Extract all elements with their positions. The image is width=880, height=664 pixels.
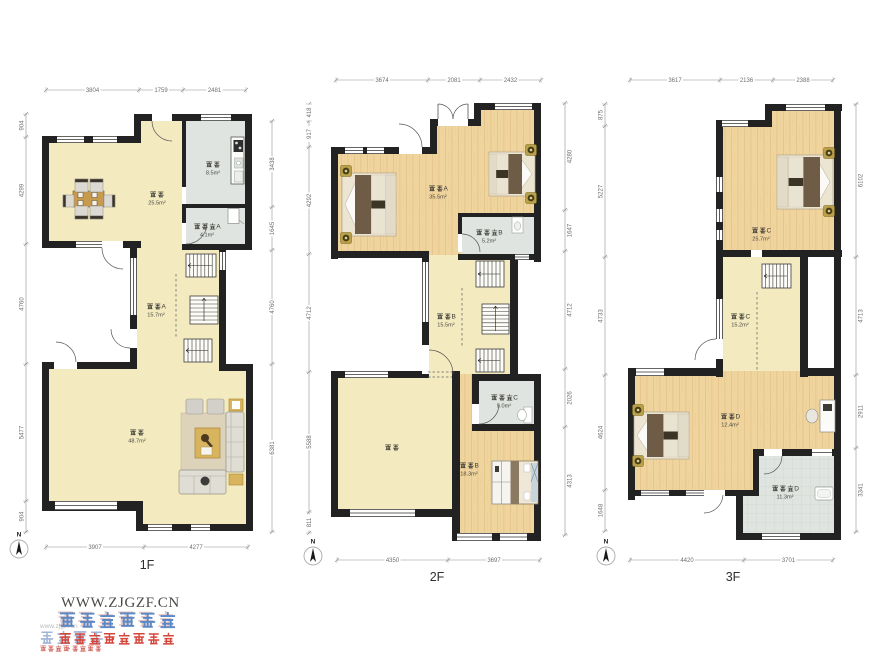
svg-text:4713: 4713 [859,309,865,323]
svg-text:D: D [736,414,741,421]
svg-text:5.2m²: 5.2m² [482,239,496,245]
svg-text:35.5m²: 35.5m² [429,195,447,201]
svg-text:2432: 2432 [504,78,518,84]
svg-text:2136: 2136 [740,78,754,84]
svg-text:3674: 3674 [375,78,389,84]
svg-text:15.2m²: 15.2m² [731,323,749,329]
svg-text:811: 811 [307,517,313,527]
svg-text:25.5m²: 25.5m² [148,201,166,207]
svg-text:N: N [311,539,316,546]
svg-text:1759: 1759 [154,88,168,94]
svg-text:C: C [746,314,751,321]
svg-text:3804: 3804 [86,88,100,94]
svg-text:904: 904 [20,120,26,131]
svg-text:3697: 3697 [487,558,501,564]
svg-text:A: A [162,304,167,311]
svg-text:917: 917 [307,128,313,139]
svg-text:3701: 3701 [782,558,796,564]
svg-text:5588: 5588 [307,435,313,449]
svg-text:6381: 6381 [270,441,276,455]
svg-text:4299: 4299 [20,183,26,197]
svg-text:C: C [513,395,518,402]
svg-text:4760: 4760 [270,300,276,314]
svg-text:D: D [794,486,799,493]
svg-text:4292: 4292 [307,193,313,207]
svg-text:3907: 3907 [88,545,102,551]
svg-text:1648: 1648 [599,503,605,517]
svg-text:4733: 4733 [599,309,605,323]
svg-text:WWW.ZJGZF.CN: WWW.ZJGZF.CN [61,595,180,611]
svg-text:B: B [475,463,479,470]
svg-text:4420: 4420 [680,558,694,564]
svg-text:4712: 4712 [568,303,574,317]
svg-text:2F: 2F [430,570,445,584]
svg-text:N: N [604,539,609,546]
svg-text:3F: 3F [726,570,741,584]
svg-text:48.7m²: 48.7m² [128,439,146,445]
svg-text:N: N [17,532,22,539]
svg-text:B: B [498,230,502,237]
svg-text:A: A [216,224,221,231]
svg-text:2081: 2081 [447,78,461,84]
svg-text:875: 875 [599,109,605,120]
svg-text:5477: 5477 [20,425,26,439]
svg-text:1647: 1647 [568,223,574,237]
svg-text:2388: 2388 [796,78,810,84]
svg-text:4277: 4277 [189,545,203,551]
svg-text:4760: 4760 [20,297,26,311]
svg-text:C: C [767,228,772,235]
svg-text:3438: 3438 [270,157,276,171]
svg-text:3341: 3341 [859,483,865,497]
svg-text:4350: 4350 [386,558,400,564]
svg-text:2481: 2481 [208,88,222,94]
svg-text:A: A [444,186,449,193]
svg-text:4313: 4313 [568,474,574,488]
svg-text:5.0m²: 5.0m² [497,404,511,410]
svg-text:1F: 1F [140,558,155,572]
svg-text:2911: 2911 [859,404,865,418]
svg-text:12.4m²: 12.4m² [721,423,739,429]
svg-text:15.7m²: 15.7m² [147,313,165,319]
svg-text:418: 418 [307,107,313,118]
svg-text:B: B [452,314,456,321]
svg-text:4624: 4624 [599,425,605,439]
svg-text:4280: 4280 [568,149,574,163]
svg-text:2026: 2026 [568,391,574,405]
svg-text:18.3m²: 18.3m² [460,472,478,478]
svg-text:6102: 6102 [859,173,865,187]
svg-text:4.1m²: 4.1m² [200,233,214,239]
svg-text:1645: 1645 [270,221,276,235]
svg-text:25.7m²: 25.7m² [752,237,770,243]
svg-text:5227: 5227 [599,184,605,198]
svg-text:11.3m²: 11.3m² [777,495,794,501]
svg-text:4712: 4712 [307,306,313,320]
svg-text:8.5m²: 8.5m² [206,171,220,177]
svg-text:904: 904 [20,511,26,522]
svg-text:3617: 3617 [668,78,682,84]
svg-text:15.5m²: 15.5m² [437,323,455,329]
